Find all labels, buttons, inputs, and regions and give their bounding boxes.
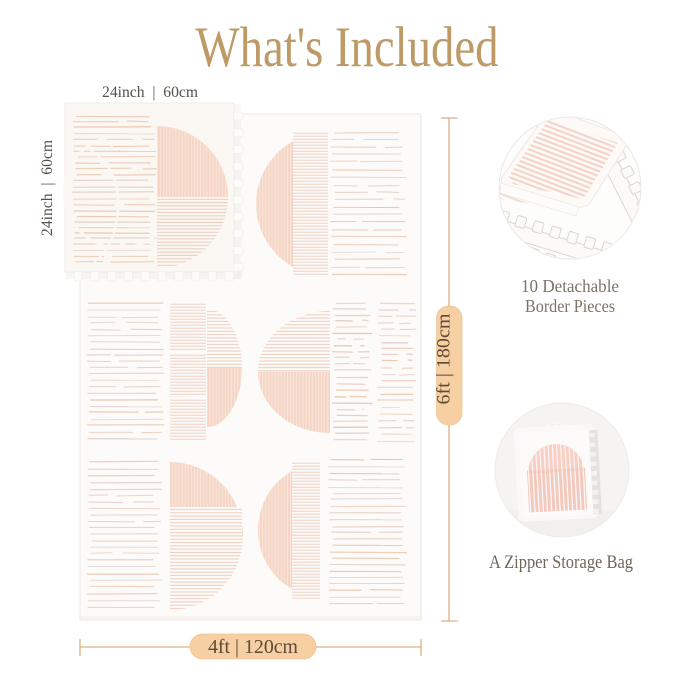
svg-text:24inch | 60cm: 24inch | 60cm [102, 84, 199, 101]
svg-text:Border Pieces: Border Pieces [525, 296, 615, 316]
svg-text:6ft | 180cm: 6ft | 180cm [435, 313, 455, 405]
svg-text:What's Included: What's Included [196, 16, 499, 79]
svg-text:24inch | 60cm: 24inch | 60cm [39, 139, 56, 236]
svg-text:A Zipper Storage Bag: A Zipper Storage Bag [489, 552, 633, 573]
svg-text:4ft | 120cm: 4ft | 120cm [208, 636, 298, 658]
svg-text:10 Detachable: 10 Detachable [521, 276, 619, 296]
